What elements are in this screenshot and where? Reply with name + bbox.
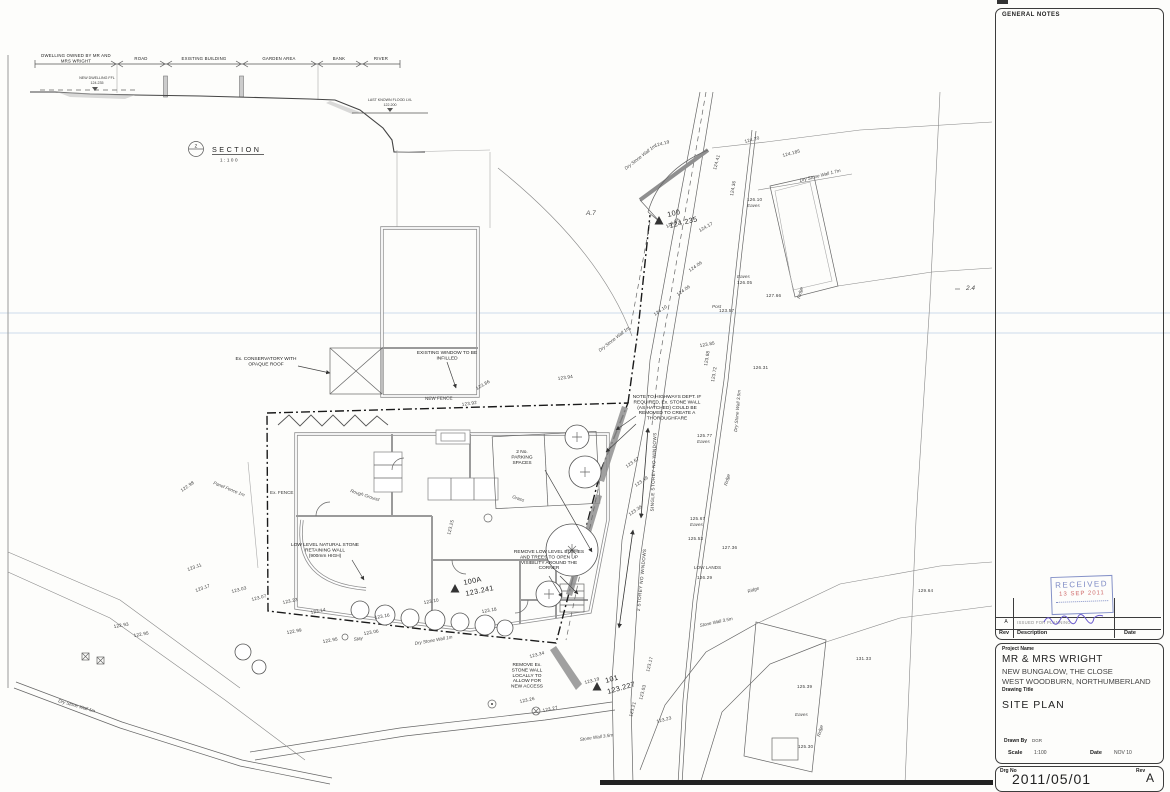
spot-level: 127.66 [766,293,781,298]
feature-label: Eaves [690,522,703,527]
section-seg-label: BANK [333,56,346,61]
feature-label: Grass [512,494,526,503]
feature-label: Eaves [747,203,760,208]
roads-and-walls [8,92,992,784]
spot-level: 126.29 [697,575,712,580]
handwritten-mark [1040,611,1112,627]
feature-label: Eaves [697,439,710,444]
spot-level: 123.57 [719,308,734,313]
spot-level: 125.30 [798,744,813,749]
spot-level: 123.21 [628,701,637,717]
spot-level: 131.33 [856,656,871,661]
survey-station: 101123.227 [593,673,637,696]
spot-level: 122.93 [113,621,129,629]
plan-annotation: NOTE TO HIGHWAYS DEPT. IFREQUIRED, Ex. S… [633,394,702,422]
spot-level: 124.41 [712,154,721,170]
survey-station: 100124.235 [655,207,699,230]
spot-level: 124.17 [698,221,714,233]
vertical-note: 2 STOREY NO WINDOWS [636,548,648,611]
drawing-title: SITE PLAN [1002,699,1065,711]
spot-level: 122.95 [322,636,338,644]
spot-level: 123.06 [363,628,379,636]
revision-header-description: Description [1017,630,1047,636]
level-symbol [92,87,98,91]
feature-label: Panel Fence 1m [213,480,246,497]
spot-level: 125.77 [697,433,712,438]
section-seg-label: DWELLING OWNED BY MR AND [41,53,111,58]
feature-label: Dry Stone Wall 1.7m [799,168,841,183]
conservatory [330,348,382,394]
spot-level: 125.39 [797,684,812,689]
plan-annotation: 2 No.PARKINGSPACES [511,449,533,466]
revision-table-line [1013,598,1014,638]
scan-mark [997,0,1008,4]
plan-annotation: REMOVE Ex.STONE WALLLOCALLY TOALLOW FORN… [511,662,543,690]
feature-label: Dry Stone Wall 3.5m [733,390,742,432]
drawn-by-value: DGR [1032,738,1042,743]
feature-label: Eaves [795,712,808,717]
spot-level: 125.53 [688,536,703,541]
received-stamp: RECEIVED 13 SEP 2011 [1050,575,1113,615]
spot-level: 123.34 [529,650,545,659]
existing-building [382,228,478,396]
flood-level-label: LAST KNOWN FLOOD LVL [368,98,412,102]
section-drawing: DWELLING OWNED BY MR AND MRS WRIGHT ROAD… [30,53,428,163]
spot-level: 122.98 [180,480,196,493]
level-symbol [387,108,393,112]
spot-level: 123.11 [187,562,203,572]
feature-label: Ridge [723,473,731,486]
section-seg-label: RIVER [374,56,388,61]
spot-level: 123.49 [634,475,650,488]
feature-label: Stone Wall 3.5m [699,616,733,628]
spot-level: 123.25 [446,519,455,535]
scanned-site-plan-sheet: { "section": { "symbol_letter": "Z", "ti… [0,0,1170,785]
feature-label: Dry Stone Wall 1m [414,634,453,646]
spot-level: 125.67 [690,516,705,521]
spot-level: 123.18 [481,606,497,614]
plan-annotation: LOW LEVEL NATURAL STONERETAINING WALL(90… [291,542,359,559]
new-dwelling-ffl-value: 124.235 [91,81,104,85]
survey-station: 100A123.241 [451,574,495,598]
spot-level: 124.10 [653,304,669,317]
date-value: NOV 10 [1114,750,1132,756]
feature-label: Dry Stone Wall 1m [58,698,96,713]
spot-level: 122.95 [133,630,149,638]
feature-label: Post [712,304,722,309]
spot-level: 123.23 [656,715,672,724]
station-number: 100 [666,207,681,219]
spot-level: 124.06 [676,284,692,297]
section-title: SECTION [212,145,261,154]
section-seg-label: MRS WRIGHT [61,59,91,64]
spot-level: 123.07 [251,593,267,602]
drawn-by-label: Drawn By [1004,738,1027,744]
general-notes-title: GENERAL NOTES [1002,12,1060,18]
scan-edge-bar [600,780,993,785]
spot-level: 123.67 [625,456,641,469]
feature-label: Stone Wall 3.5m [579,732,613,742]
project-address-line2: WEST WOODBURN, NORTHUMBERLAND [1002,677,1151,686]
feature-label: Dry Stone Wall 1m [624,143,657,171]
plan-annotation: EXISTING WINDOW TO BEINFILLED [417,350,477,361]
spot-level: 124.36 [729,180,737,196]
section-seg-label: ROAD [134,56,147,61]
spot-level: 124.185 [782,148,801,158]
station-number: 101 [604,673,619,685]
feature-label: Eaves [737,274,750,279]
spot-level: 124.19 [654,139,670,148]
project-name-label: Project Name [1002,646,1034,652]
site-plan: 124.19124.20124.185124.41124.36126.10124… [8,92,992,784]
spot-level: 124.06 [688,260,704,273]
vertical-note: SINGLE STOREY NO WINDOWS [650,432,658,511]
spot-level: 126.31 [753,365,768,370]
neighbor-buildings [744,176,838,772]
revision-table-line [1114,598,1115,638]
feature-label: NEW FENCE [425,396,453,401]
survey-symbols [82,289,960,715]
spot-level: 129.64 [918,588,933,593]
received-stamp-dots [1056,600,1108,603]
spot-level: 123.88 [703,350,711,366]
feature-label: 2.4 [965,285,975,292]
revision-header-date: Date [1124,630,1136,636]
spot-level: 123.94 [557,374,573,381]
feature-label: A.7 [585,210,596,217]
scale-value: 1:100 [1034,750,1047,756]
new-dwelling-ffl-label: NEW DWELLING FFL [79,76,115,80]
spot-level: 123.27 [542,705,558,713]
received-stamp-date: 13 SEP 2011 [1052,590,1112,598]
spot-level: 123.17 [645,656,654,672]
feature-labels-layer: NEW FENCEDry Stone Wall 1mDry Stone Wall… [58,143,976,742]
feature-label: Ex. FENCE [270,490,293,495]
spot-level: 123.26 [519,696,535,704]
spot-level: 123.17 [195,583,211,593]
feature-label: LOW LANDS [694,565,721,570]
section-seg-label: GARDEN AREA [262,56,295,61]
drawing-title-label: Drawing Title [1002,687,1033,693]
spot-level: 126.05 [737,280,752,285]
revision-entry-rev: A [1000,619,1012,625]
received-stamp-text: RECEIVED [1051,579,1111,590]
general-notes-box [995,8,1164,640]
feature-label: Ridge [796,286,804,299]
spot-level: 127.36 [722,545,737,550]
spot-level: 123.72 [710,366,718,382]
date-label: Date [1090,750,1102,756]
spot-level: 126.10 [747,197,762,202]
scale-label: Scale [1008,750,1022,756]
feature-label: Dry Stone Wall 1m [598,325,631,353]
spot-level: 123.92 [461,400,477,407]
rev-label: Rev [1136,768,1145,774]
project-address-line1: NEW BUNGALOW, THE CLOSE [1002,667,1113,676]
project-name: MR & MRS WRIGHT [1002,654,1103,665]
section-scale: 1:100 [220,158,239,163]
hedges [278,415,513,636]
section-seg-label: EXISTING BUILDING [182,56,227,61]
feature-label: Ridge [816,724,824,737]
spot-level: 123.03 [638,684,647,700]
spot-level: 123.14 [310,607,326,615]
spot-level: 122.99 [286,627,302,635]
revision-header-rev: Rev [999,630,1009,636]
feature-label: Ridge [747,585,760,594]
spot-level: 123.03 [231,585,247,594]
spot-level: 123.85 [699,340,715,348]
plan-annotation: Ex. CONSERVATORY WITHOPAQUE ROOF [235,356,297,367]
flood-level-value: 122.200 [384,103,397,107]
rev-value: A [1146,771,1154,785]
feature-label: Stay [353,635,364,642]
section-symbol-letter: Z [195,144,198,149]
